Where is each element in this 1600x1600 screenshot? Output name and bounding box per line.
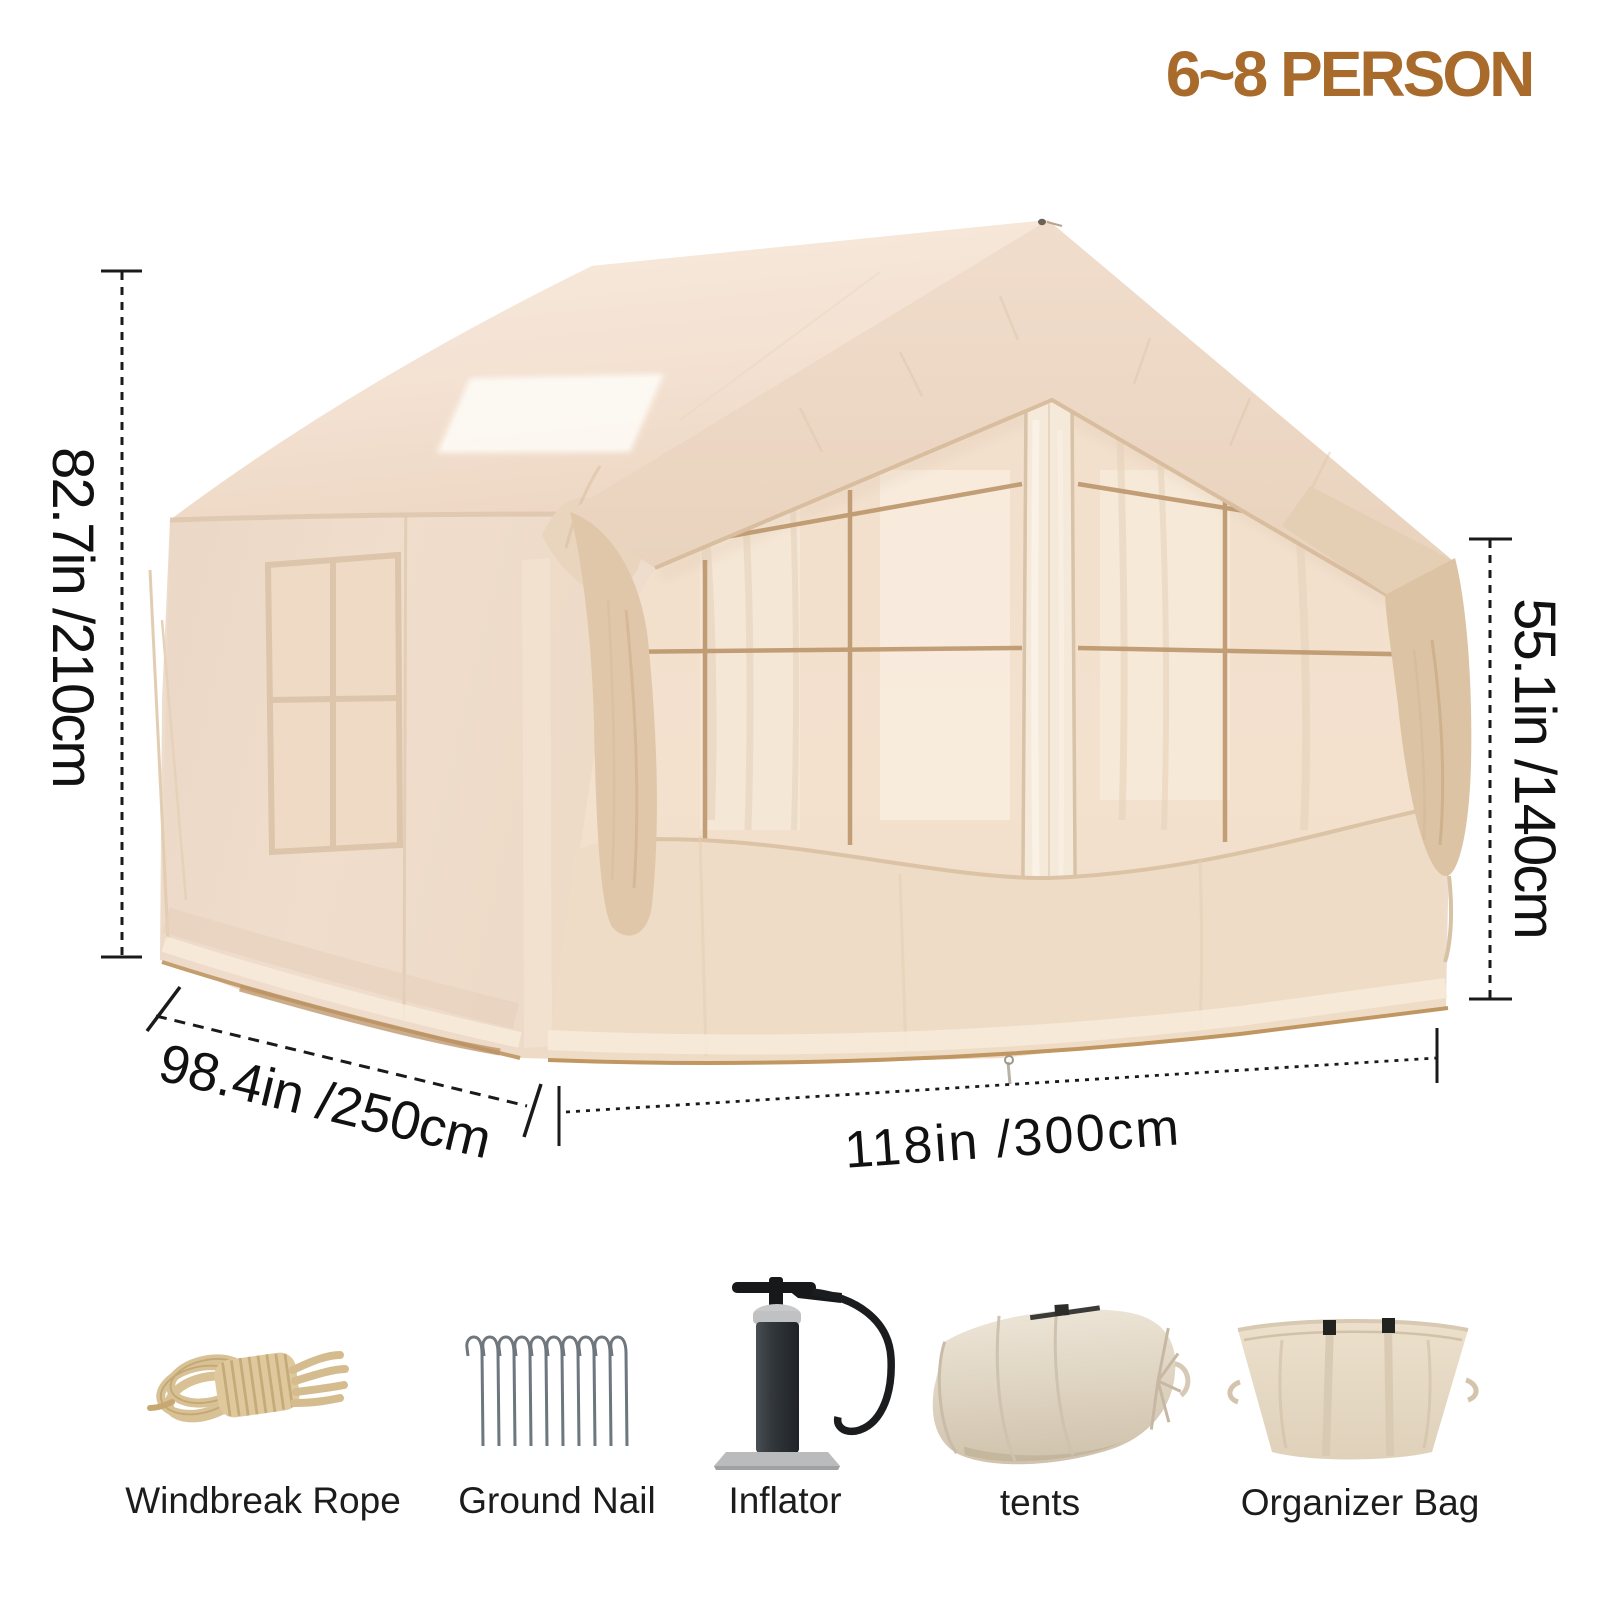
svg-text:Windbreak Rope: Windbreak Rope [125, 1480, 401, 1521]
svg-text:118in /300cm: 118in /300cm [843, 1098, 1183, 1179]
svg-text:Ground Nail: Ground Nail [458, 1480, 655, 1521]
svg-text:55.1in /140cm: 55.1in /140cm [1502, 598, 1567, 938]
svg-text:Organizer Bag: Organizer Bag [1241, 1482, 1480, 1523]
svg-text:6~8 PERSON: 6~8 PERSON [1166, 38, 1533, 110]
svg-text:tents: tents [1000, 1482, 1080, 1523]
svg-text:98.4in /250cm: 98.4in /250cm [153, 1033, 497, 1171]
svg-text:82.7in /210cm: 82.7in /210cm [40, 447, 105, 787]
svg-text:Inflator: Inflator [728, 1480, 841, 1521]
